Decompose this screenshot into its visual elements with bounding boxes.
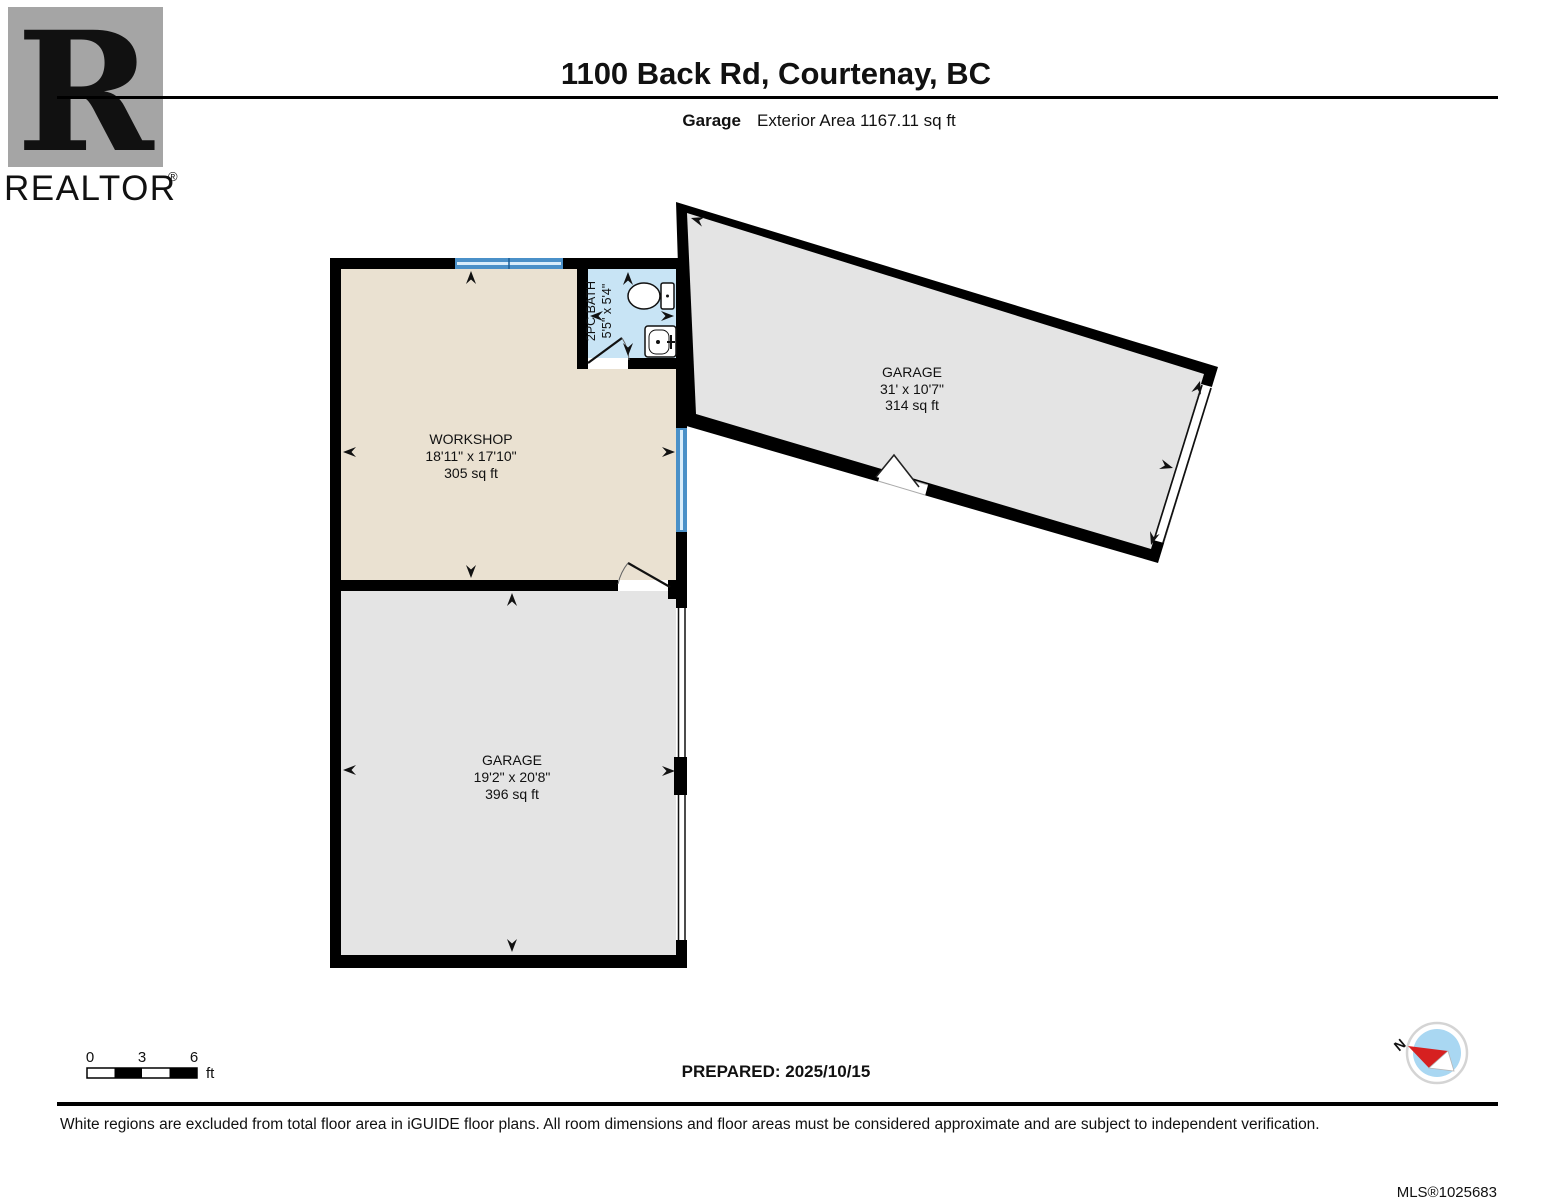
window-workshop-right	[676, 428, 687, 532]
floor-name: Garage	[682, 111, 741, 130]
realtor-logo: R REALTOR ®	[4, 0, 178, 208]
garage-upper-name: GARAGE	[882, 364, 942, 380]
workshop-area: 305 sq ft	[444, 465, 498, 481]
bath-name: 2PC BATH	[584, 281, 598, 341]
prepared-date: PREPARED: 2025/10/15	[682, 1062, 871, 1081]
sink-icon	[645, 326, 676, 357]
scale-tick-6: 6	[190, 1049, 198, 1066]
garage-door-lower-right-2	[676, 794, 687, 940]
bath-dims: 5'5" x 5'4"	[600, 284, 614, 339]
garage-upper-dims: 31' x 10'7"	[880, 381, 944, 397]
scale-bar: 0 3 6 ft	[86, 1049, 215, 1082]
right-wall-post	[674, 757, 687, 795]
garage-upper-area: 314 sq ft	[885, 397, 939, 413]
garage-door-lower-right-1	[676, 608, 687, 758]
compass-icon: N	[1391, 1023, 1467, 1083]
workshop-dims: 18'11" x 17'10"	[425, 448, 516, 464]
garage-lower-area: 396 sq ft	[485, 786, 539, 802]
toilet-icon	[628, 283, 674, 309]
page-title: 1100 Back Rd, Courtenay, BC	[561, 56, 991, 91]
room-garage-upper	[676, 202, 1218, 563]
scale-tick-0: 0	[86, 1049, 94, 1066]
workshop-name: WORKSHOP	[429, 431, 512, 447]
header-divider	[57, 96, 1498, 99]
footer-disclaimer: White regions are excluded from total fl…	[60, 1116, 1320, 1133]
window-workshop-top	[455, 258, 563, 269]
garage-lower-dims: 19'2" x 20'8"	[474, 769, 551, 785]
garage-upper-label: GARAGE 31' x 10'7" 314 sq ft	[880, 364, 944, 413]
mls-number: MLS®1025683	[1397, 1184, 1497, 1200]
realtor-brand-text: REALTOR	[4, 169, 177, 208]
floorplan-page: R REALTOR ® 1100 Back Rd, Courtenay, BC …	[0, 0, 1553, 1200]
garage-lower-name: GARAGE	[482, 752, 542, 768]
registered-mark: ®	[168, 169, 178, 184]
scale-unit: ft	[206, 1065, 215, 1082]
floor-exterior-area: Exterior Area 1167.11 sq ft	[757, 111, 956, 130]
realtor-logo-letter: R	[16, 0, 155, 189]
scale-tick-3: 3	[138, 1049, 146, 1066]
footer-divider	[57, 1102, 1498, 1106]
